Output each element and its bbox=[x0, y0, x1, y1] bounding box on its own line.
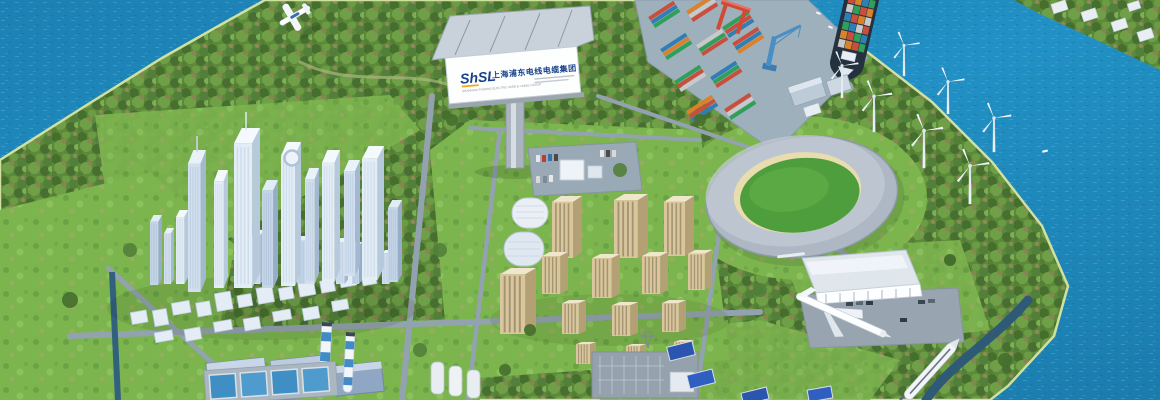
tower bbox=[214, 170, 228, 288]
eco-industrial-park-aerial-view: ShSL 上海浦东电线电缆集团 SHANGHAI PUDONG ELECTRIC… bbox=[0, 0, 1160, 400]
tower bbox=[164, 228, 174, 284]
apartment-tower bbox=[664, 196, 694, 256]
apartment-block bbox=[562, 300, 586, 334]
tower bbox=[262, 180, 278, 288]
apartment-block bbox=[642, 252, 668, 294]
apartment-block bbox=[662, 300, 686, 332]
apartment-block bbox=[612, 302, 638, 336]
tower bbox=[388, 200, 402, 282]
apartment-block bbox=[542, 252, 568, 294]
service-building bbox=[560, 160, 584, 180]
apartment-block bbox=[688, 250, 712, 290]
jinmao-style-tower bbox=[188, 150, 206, 292]
tower bbox=[176, 210, 188, 284]
service-building-small bbox=[588, 166, 602, 178]
tower bbox=[344, 160, 360, 276]
tallest-tower bbox=[234, 128, 260, 288]
apartment-tower bbox=[614, 194, 648, 258]
apartment-tower bbox=[552, 196, 582, 258]
tower bbox=[322, 150, 340, 282]
apartment-block bbox=[592, 254, 620, 298]
tower bbox=[362, 146, 384, 280]
scene-canvas: ShSL 上海浦东电线电缆集团 SHANGHAI PUDONG ELECTRIC… bbox=[0, 0, 1160, 400]
tower-aperture bbox=[285, 151, 300, 166]
tower bbox=[305, 168, 319, 284]
pole-highlight bbox=[511, 96, 516, 168]
exhibition-hall bbox=[802, 250, 922, 304]
tower bbox=[150, 215, 162, 285]
